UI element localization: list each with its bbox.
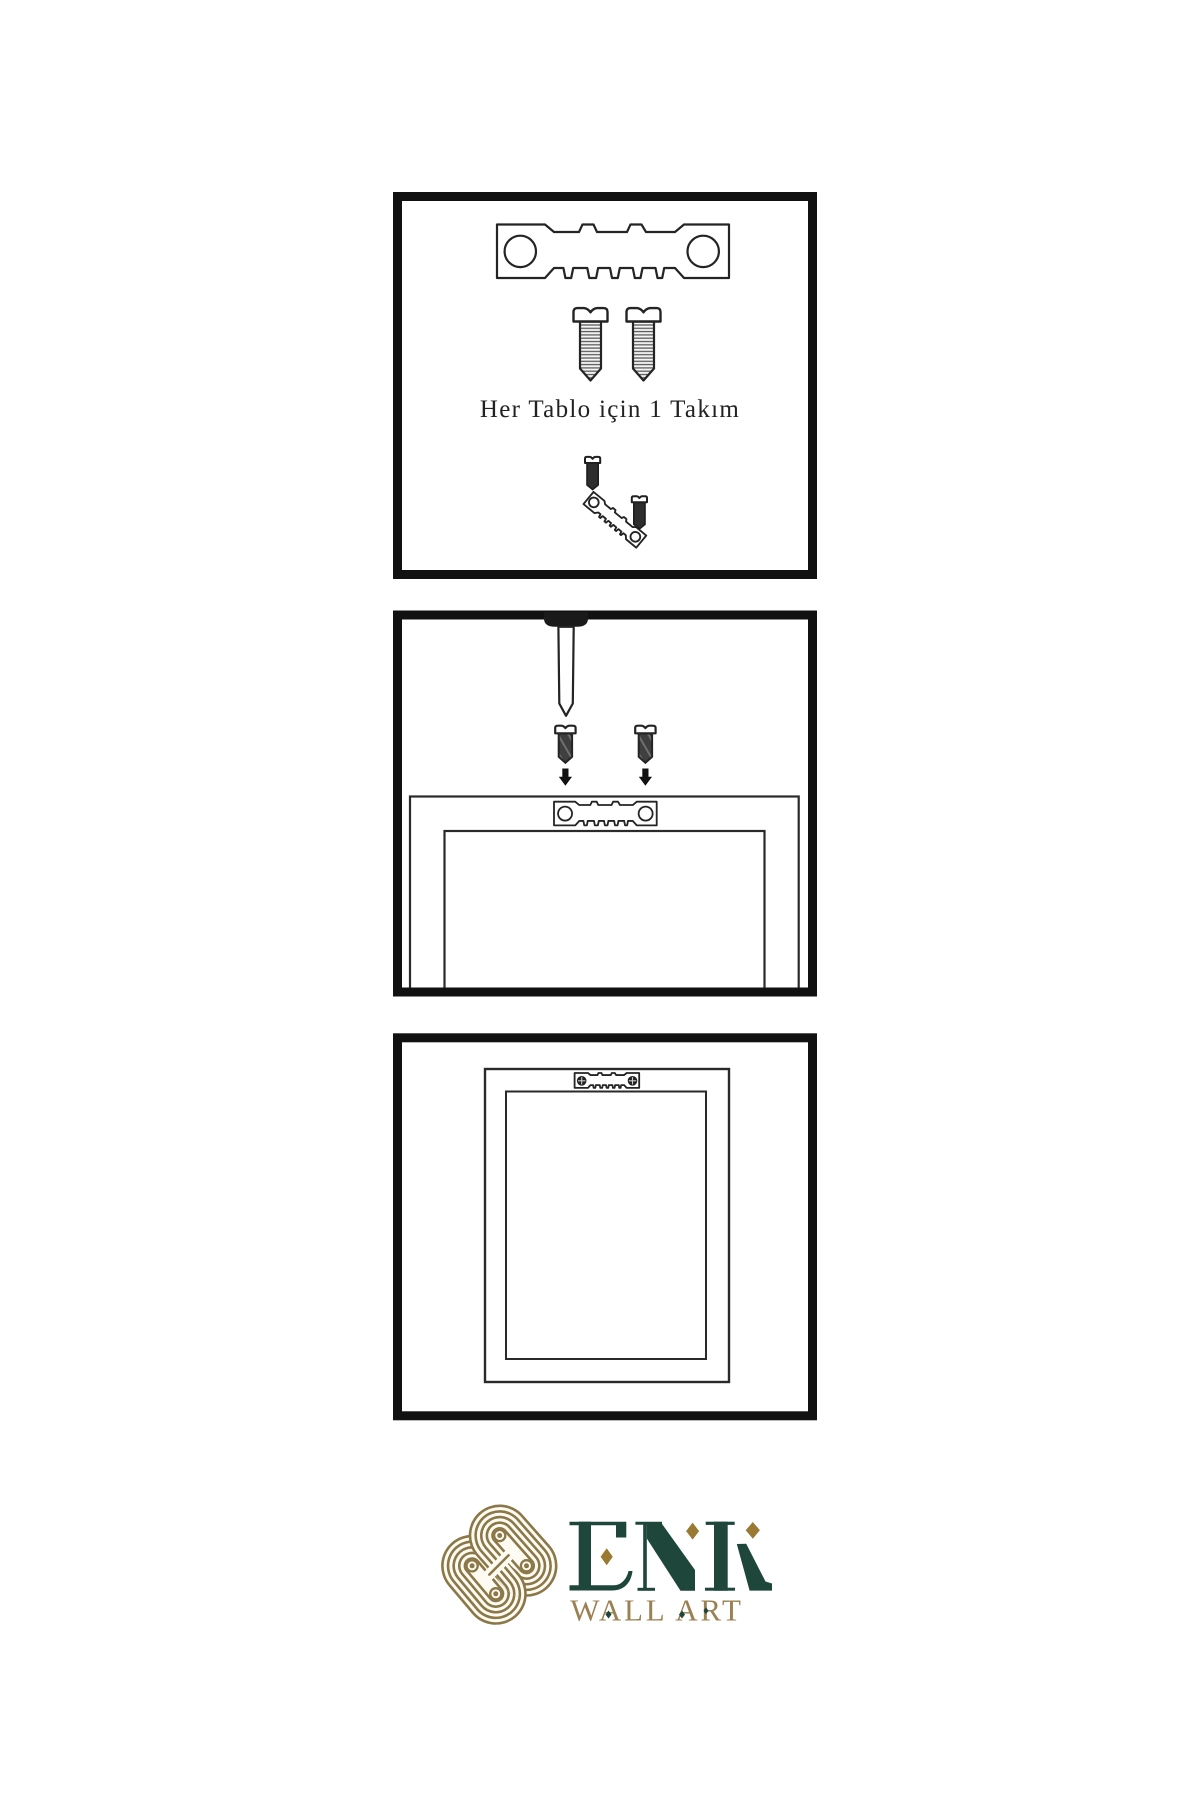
svg-text:WALL ART: WALL ART — [570, 1593, 744, 1628]
svg-text:Her Tablo için 1 Takım: Her Tablo için 1 Takım — [480, 396, 740, 423]
